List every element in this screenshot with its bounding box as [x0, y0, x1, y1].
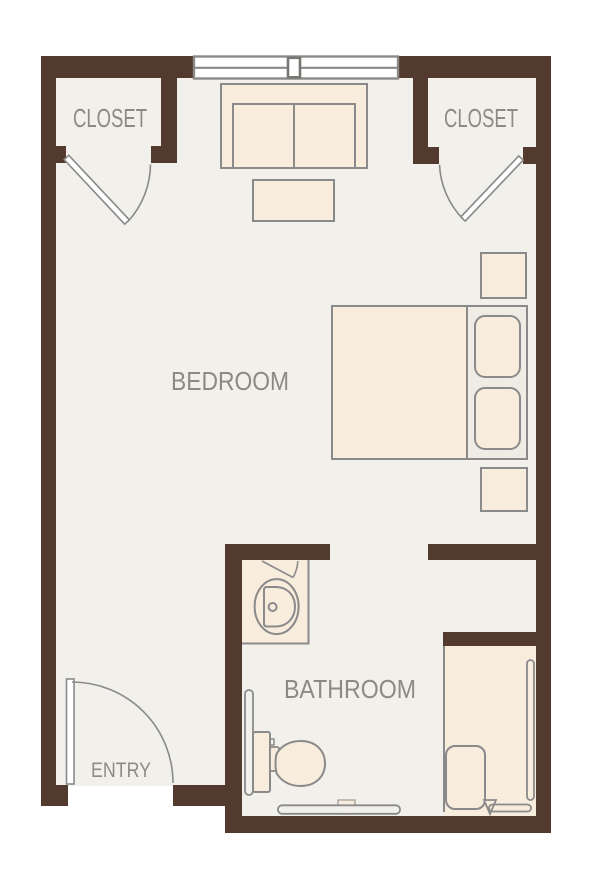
svg-text:CLOSET: CLOSET [73, 103, 147, 133]
svg-text:ENTRY: ENTRY [91, 759, 151, 782]
svg-text:BATHROOM: BATHROOM [284, 674, 416, 704]
svg-text:BEDROOM: BEDROOM [171, 366, 289, 396]
svg-text:CLOSET: CLOSET [444, 103, 518, 133]
